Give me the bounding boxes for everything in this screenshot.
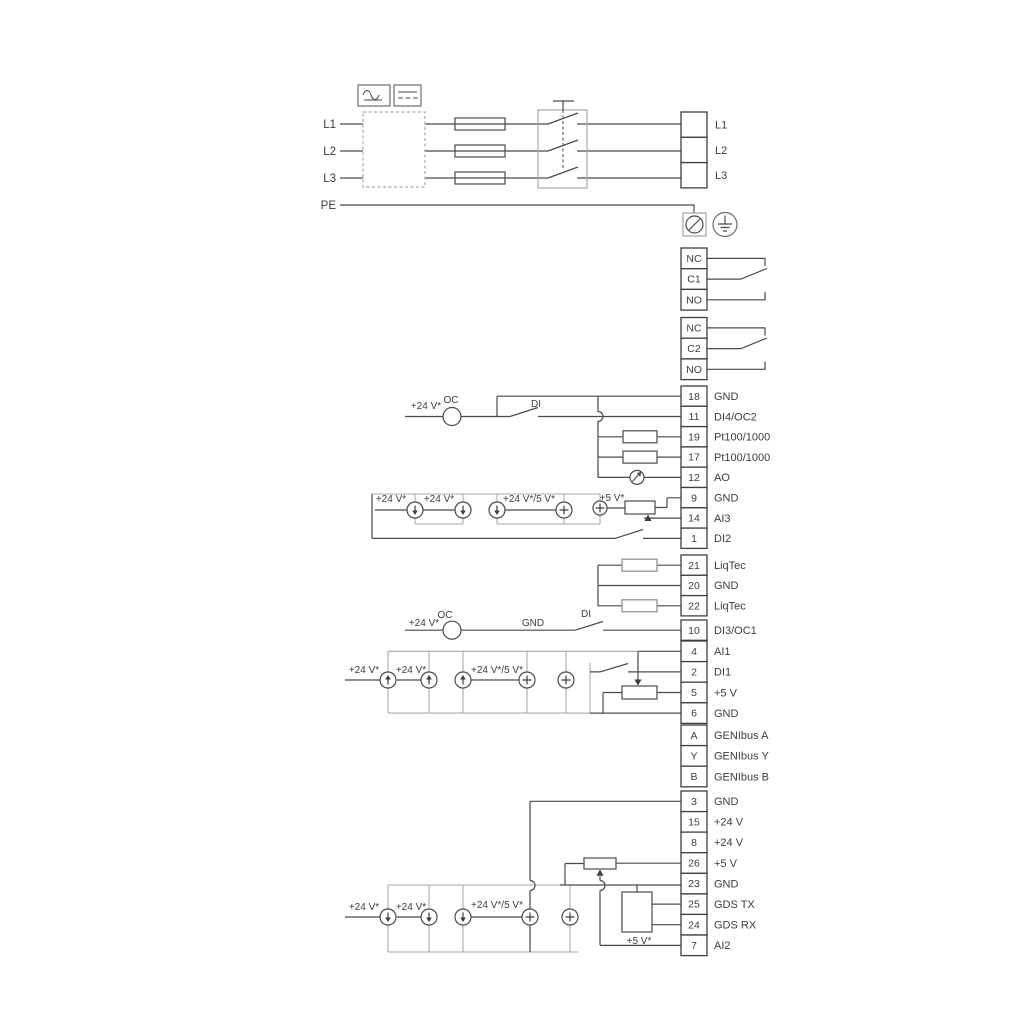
relay-terminal-NO: NO: [681, 359, 707, 380]
annotation-ai3_p24b: +24 V*: [424, 494, 454, 505]
terminal-21: 21LiqTec: [681, 555, 746, 575]
terminal-label: DI4/OC2: [714, 411, 757, 423]
terminal-3: 3GND: [681, 791, 739, 812]
mains-out-label-l3: L3: [715, 170, 727, 182]
terminal-number: 3: [691, 796, 697, 808]
terminal-number: Y: [690, 751, 697, 763]
mains-section: L1 L2 L3 PE: [321, 85, 737, 237]
ac-wave-icon: [358, 85, 390, 106]
terminal-number: 8: [691, 837, 697, 849]
potentiometer-ai2: [584, 858, 616, 876]
annotation-ai2_p245: +24 V*/5 V*: [471, 900, 523, 911]
contactor-switch-icon: [538, 101, 587, 188]
meter-icon: [630, 470, 644, 484]
supply-filter-box: [363, 112, 425, 187]
terminal-number: 15: [688, 817, 700, 829]
annotation-di_top: DI: [531, 399, 541, 410]
terminal-number: 10: [688, 625, 700, 637]
terminal-label: GDS TX: [714, 899, 755, 911]
terminal-number: 20: [688, 580, 700, 592]
wiring-diagram: L1 L2 L3 PE: [0, 0, 1024, 1024]
terminal-number: 4: [691, 646, 697, 658]
relay-terminal-label: NC: [686, 253, 702, 265]
terminal-19: 19Pt100/1000: [681, 427, 770, 447]
terminal-11: 11DI4/OC2: [681, 406, 757, 426]
terminal-6: 6GND: [681, 703, 739, 724]
mains-out-label-l1: L1: [715, 120, 727, 132]
terminal-label: +5 V: [714, 858, 738, 870]
mains-label-pe: PE: [321, 200, 337, 212]
current-source-icon: [407, 502, 423, 518]
terminal-24: 24GDS RX: [681, 914, 757, 935]
terminal-label: GND: [714, 391, 739, 403]
terminal-number: 2: [691, 667, 697, 679]
terminal-label: Pt100/1000: [714, 432, 770, 444]
annotation-oc_top: OC: [444, 395, 459, 406]
terminal-18: 18GND: [681, 386, 739, 406]
annotation-ai1_p24b: +24 V*: [396, 665, 426, 676]
terminal-number: B: [690, 771, 697, 783]
terminal-number: 24: [688, 919, 700, 931]
terminal-number: 6: [691, 708, 697, 720]
resistor-icons: [622, 431, 657, 612]
terminal-label: AI3: [714, 513, 731, 525]
annotation-ai2_p5: +5 V*: [627, 936, 652, 947]
annotation-ai1_p245: +24 V*/5 V*: [471, 665, 523, 676]
relay-terminal-label: C2: [687, 343, 701, 355]
current-source-icon: [380, 909, 396, 925]
relay-terminal-NO: NO: [681, 289, 707, 310]
terminal-14: 14AI3: [681, 508, 731, 528]
terminal-label: AO: [714, 472, 730, 484]
current-source-icon: [455, 909, 471, 925]
terminal-25: 25GDS TX: [681, 894, 755, 915]
relay-section: NCC1NONCC2NO: [681, 248, 707, 380]
relay-terminal-label: NC: [686, 323, 702, 335]
current-source-icon: [380, 672, 396, 688]
terminal-label: LiqTec: [714, 560, 746, 572]
terminal-blocks: 18GND11DI4/OC219Pt100/100017Pt100/100012…: [681, 386, 770, 956]
relay-terminal-label: NO: [686, 294, 702, 306]
terminal-label: GENIbus B: [714, 771, 769, 783]
terminal-number: 12: [688, 472, 700, 484]
terminal-label: GND: [714, 580, 739, 592]
terminal-label: DI1: [714, 667, 731, 679]
terminal-number: 9: [691, 492, 697, 504]
terminal-4: 4AI1: [681, 641, 731, 662]
relay-terminal-C1: C1: [681, 269, 707, 290]
dc-line-icon: [394, 85, 421, 106]
relay-wiring: [707, 258, 767, 369]
terminal-label: GND: [714, 878, 739, 890]
annotation-ai2_p24a: +24 V*: [349, 902, 379, 913]
gds-sensor-box: [622, 892, 652, 932]
terminal-15: 15+24 V: [681, 812, 744, 833]
terminal-label: GND: [714, 708, 739, 720]
mains-label-l2: L2: [323, 146, 336, 158]
terminal-7: 7AI2: [681, 935, 731, 956]
terminal-label: GND: [714, 492, 739, 504]
terminal-17: 17Pt100/1000: [681, 447, 770, 467]
mains-label-l1: L1: [323, 119, 336, 131]
terminal-label: DI3/OC1: [714, 625, 757, 637]
terminal-number: 5: [691, 687, 697, 699]
terminal-number: 11: [689, 411, 700, 423]
annotation-di3_di: DI: [581, 609, 591, 620]
terminal-label: +5 V: [714, 687, 738, 699]
relay-terminal-label: C1: [687, 274, 701, 286]
terminal-label: +24 V: [714, 817, 744, 829]
potentiometer-ai1: [622, 680, 657, 700]
relay-terminal-label: NO: [686, 364, 702, 376]
relay-terminal-NC: NC: [681, 318, 707, 339]
mains-wires: [340, 124, 694, 213]
terminal-label: AI1: [714, 646, 731, 658]
terminal-number: 1: [691, 533, 697, 545]
terminal-label: GND: [714, 796, 739, 808]
terminal-number: 18: [688, 391, 700, 403]
terminal-label: AI2: [714, 940, 731, 952]
voltage-source-icon: [522, 909, 538, 925]
voltage-source-icon: [556, 502, 572, 518]
current-source-icon: [455, 502, 471, 518]
terminal-1: 1DI2: [681, 528, 731, 548]
current-source-icon: [455, 672, 471, 688]
terminal-number: 14: [688, 513, 700, 525]
oc-circle-di3: [443, 621, 461, 639]
annotation-di3_oc: OC: [438, 610, 453, 621]
annotation-ai3_p245: +24 V*/5 V*: [503, 494, 555, 505]
option-brackets: [372, 494, 638, 952]
voltage-source-icon: [558, 672, 574, 688]
annotation-ai1_p24a: +24 V*: [349, 665, 379, 676]
terminal-number: 7: [691, 940, 697, 952]
terminal-A: AGENIbus A: [681, 725, 769, 746]
terminal-12: 12AO: [681, 467, 730, 487]
annotation-ai2_p24b: +24 V*: [396, 902, 426, 913]
terminal-26: 26+5 V: [681, 853, 738, 874]
terminal-number: 23: [688, 878, 700, 890]
oc-circle-top: [443, 408, 461, 426]
terminal-2: 2DI1: [681, 662, 731, 683]
mains-terminal-block: L1 L2 L3: [681, 112, 727, 188]
annotation-ai3_p24a: +24 V*: [376, 494, 406, 505]
terminal-number: 25: [688, 899, 700, 911]
terminal-number: 26: [688, 858, 700, 870]
terminal-label: Pt100/1000: [714, 452, 770, 464]
annotation-di3_gnd: GND: [522, 618, 544, 629]
relay-terminal-NC: NC: [681, 248, 707, 269]
annotation-ai3_p5: +5 V*: [600, 493, 625, 504]
terminal-number: A: [690, 730, 697, 742]
terminal-number: 22: [688, 600, 700, 612]
terminal-10: 10DI3/OC1: [681, 620, 757, 640]
terminal-5: 5+5 V: [681, 682, 738, 703]
annotation-p24_di4: +24 V*: [411, 401, 441, 412]
terminal-label: LiqTec: [714, 601, 746, 613]
mains-label-l3: L3: [323, 173, 336, 185]
terminal-label: GENIbus Y: [714, 751, 769, 763]
terminal-B: BGENIbus B: [681, 766, 769, 787]
wiring-diagram-page: L1 L2 L3 PE: [0, 0, 1024, 1024]
mains-out-label-l2: L2: [715, 145, 727, 157]
terminal-label: GDS RX: [714, 920, 757, 932]
terminal-9: 9GND: [681, 488, 739, 508]
cable-gland-icon: [683, 213, 706, 236]
relay-terminal-C2: C2: [681, 338, 707, 359]
annotation-di3_p24: +24 V*: [409, 618, 439, 629]
terminal-label: +24 V: [714, 837, 744, 849]
earth-ground-icon: [713, 213, 737, 237]
terminal-number: 19: [688, 431, 700, 443]
terminal-label: GENIbus A: [714, 730, 769, 742]
terminal-number: 17: [688, 452, 700, 464]
terminal-number: 21: [688, 560, 700, 572]
voltage-source-icon: [562, 909, 578, 925]
terminal-Y: YGENIbus Y: [681, 746, 769, 767]
terminal-8: 8+24 V: [681, 832, 744, 853]
terminal-23: 23GND: [681, 873, 739, 894]
terminal-label: DI2: [714, 533, 731, 545]
terminal-20: 20GND: [681, 575, 739, 595]
terminal-22: 22LiqTec: [681, 596, 746, 616]
